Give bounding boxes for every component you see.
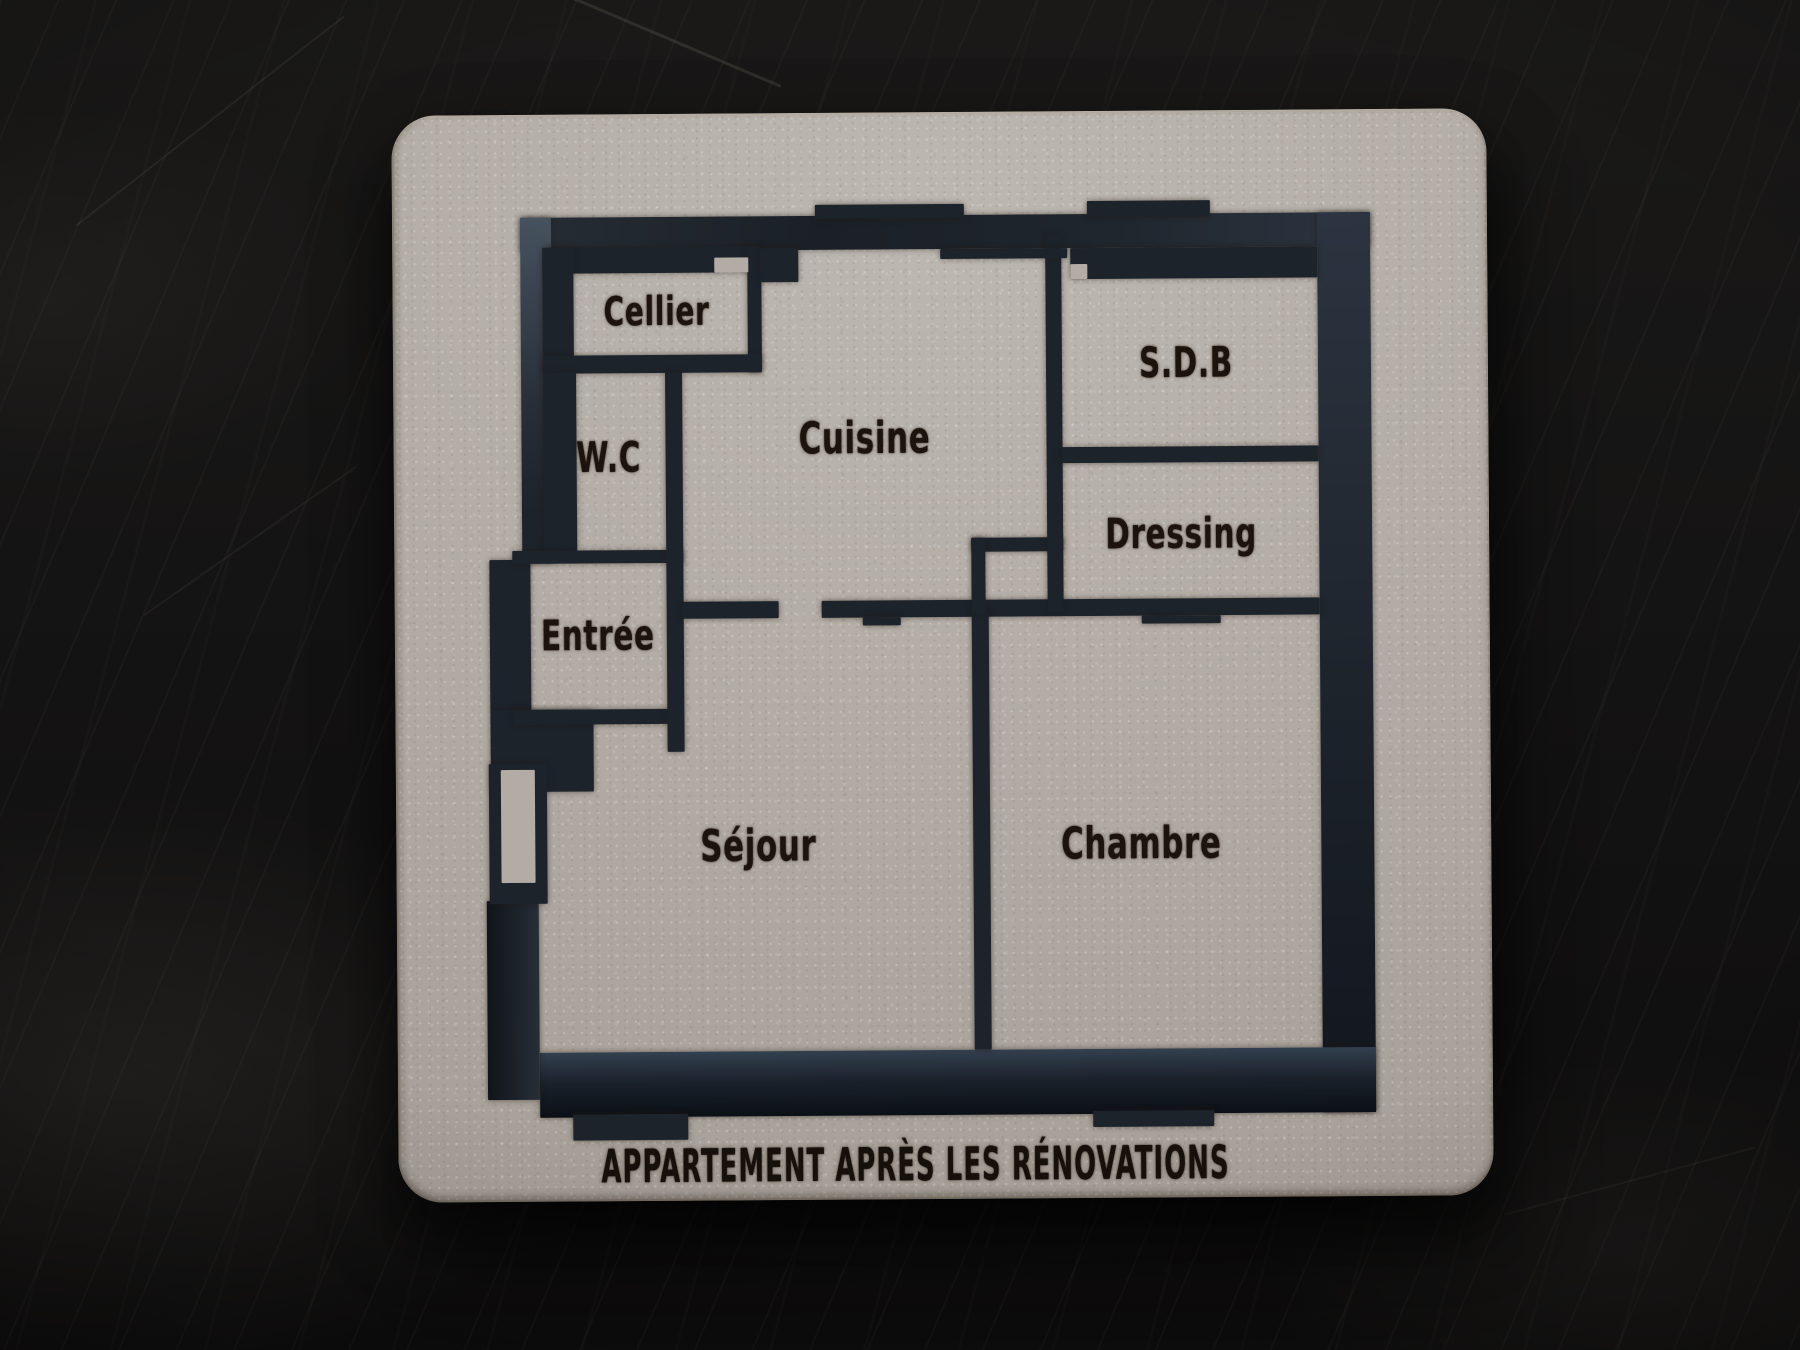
sdb-door-cutout (1070, 264, 1087, 279)
plan-caption: APPARTEMENT APRÈS LES RÉNOVATIONS (601, 1135, 1230, 1193)
room-label-sejour: Séjour (700, 820, 816, 872)
cuisine-bottom-wall-left (683, 601, 779, 619)
outer-wall-bottom-tab-1 (573, 1114, 688, 1141)
floor-plan: CellierW.CCuisineS.D.BDressingEntréeSéjo… (467, 192, 1384, 1158)
duct-left-wall (971, 538, 986, 614)
sejour-door-tab (863, 617, 901, 625)
entry-door-tab-cutout (501, 770, 536, 883)
entree-left-wall (489, 560, 531, 711)
sejour-chambre-divider-wall (972, 613, 992, 1050)
sdb-dressing-divider-wall (1062, 445, 1319, 463)
room-label-cellier: Cellier (603, 289, 709, 336)
sdb-top-wall (1070, 246, 1317, 279)
cellier-bottom-wall (543, 354, 762, 374)
outer-wall-top-tab-1 (815, 204, 964, 219)
wc-bottom-wall (512, 550, 683, 564)
table-scratch (569, 0, 782, 88)
table-scratch (75, 16, 344, 227)
room-label-sdb: S.D.B (1139, 337, 1233, 387)
outer-wall-bottom-tab-2 (1093, 1110, 1214, 1127)
entree-bottom-wall (513, 709, 671, 725)
outer-wall-top-tab-2 (1087, 200, 1210, 217)
outer-wall-left-lower (487, 901, 540, 1100)
room-label-chambre: Chambre (1061, 818, 1222, 870)
outer-wall-bottom (540, 1047, 1376, 1118)
cellier-door-cutout (714, 257, 748, 272)
cuisine-sdb-divider-wall (1045, 234, 1064, 612)
room-label-entree: Entrée (541, 611, 655, 661)
cuisine-bottom-wall-right (822, 597, 1320, 617)
cuisine-topleft-step (760, 248, 798, 282)
table-scratch (143, 466, 357, 617)
photo-laser-cut-floor-plan: CellierW.CCuisineS.D.BDressingEntréeSéjo… (0, 0, 1800, 1350)
chambre-door-tab (1142, 615, 1221, 624)
room-label-cuisine: Cuisine (798, 413, 930, 465)
room-label-wc: W.C (576, 433, 641, 482)
outer-wall-right (1317, 212, 1376, 1112)
wc-left-wall (543, 373, 577, 552)
room-label-dressing: Dressing (1105, 508, 1257, 558)
mdf-board: CellierW.CCuisineS.D.BDressingEntréeSéjo… (391, 108, 1494, 1203)
wc-entree-divider-wall (665, 372, 685, 752)
table-scratch (1504, 1146, 1756, 1215)
cuisine-top-door-tab (940, 248, 1067, 259)
